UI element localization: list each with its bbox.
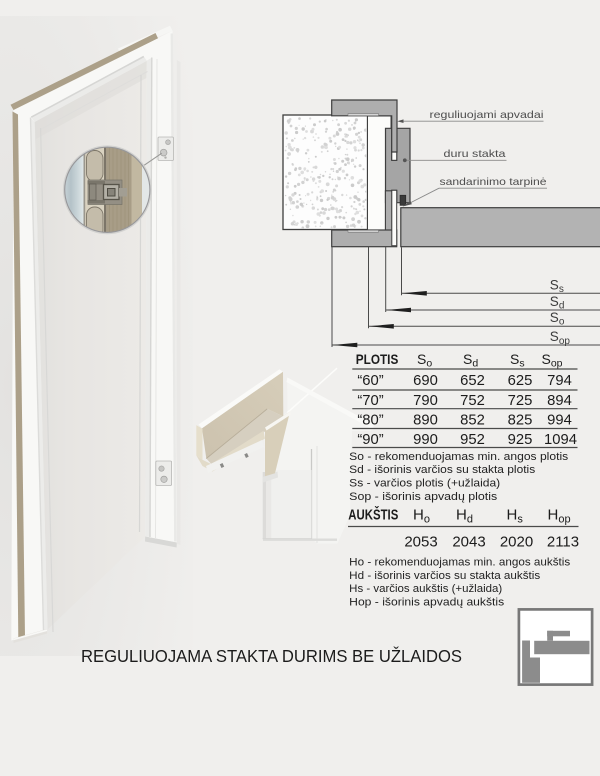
svg-text:“80”: “80” [357, 412, 383, 428]
svg-text:reguliuojami apvadai: reguliuojami apvadai [430, 109, 544, 121]
svg-text:Ho - rekomenduojamas min. ango: Ho - rekomenduojamas min. angos aukštis [349, 556, 570, 568]
svg-text:“70”: “70” [357, 393, 383, 409]
svg-text:“60”: “60” [357, 373, 383, 389]
svg-text:Sop - išorinis apvadų plotis: Sop - išorinis apvadų plotis [349, 491, 497, 503]
svg-text:REGULIUOJAMA STAKTA DURIMS BE: REGULIUOJAMA STAKTA DURIMS BE UŽLAIDOS [81, 646, 462, 666]
svg-text:Hd - išorinis varčios su stakt: Hd - išorinis varčios su stakta aukštis [349, 570, 540, 582]
svg-text:990: 990 [413, 432, 438, 448]
svg-text:duru stakta: duru stakta [444, 148, 506, 160]
svg-text:790: 790 [413, 393, 438, 409]
svg-text:825: 825 [508, 412, 533, 428]
svg-text:So - rekomenduojamas min. ango: So - rekomenduojamas min. angos plotis [349, 451, 568, 463]
svg-text:2043: 2043 [452, 534, 485, 551]
svg-text:Hs - varčios aukštis (+užlaida: Hs - varčios aukštis (+užlaida) [349, 583, 502, 595]
svg-text:Sd - išorinis varčios su stakt: Sd - išorinis varčios su stakta plotis [349, 464, 535, 476]
svg-text:AUKŠTIS: AUKŠTIS [348, 506, 398, 524]
svg-text:952: 952 [460, 432, 485, 448]
svg-text:890: 890 [413, 412, 438, 428]
svg-text:Hop - išorinis apvadų aukštis: Hop - išorinis apvadų aukštis [349, 597, 504, 609]
svg-text:752: 752 [460, 393, 485, 409]
svg-text:Ss - varčios plotis (+užlaida): Ss - varčios plotis (+užlaida) [349, 478, 500, 490]
svg-text:794: 794 [547, 373, 572, 389]
svg-text:PLOTIS: PLOTIS [356, 351, 399, 367]
svg-text:725: 725 [508, 393, 533, 409]
svg-text:994: 994 [547, 412, 572, 428]
svg-text:2020: 2020 [500, 534, 533, 551]
svg-text:sandarinimo tarpinė: sandarinimo tarpinė [440, 176, 547, 188]
svg-text:625: 625 [508, 373, 533, 389]
svg-text:894: 894 [547, 393, 572, 409]
svg-text:“90”: “90” [357, 432, 383, 448]
svg-text:925: 925 [508, 432, 533, 448]
svg-text:852: 852 [460, 412, 485, 428]
svg-text:652: 652 [460, 373, 485, 389]
svg-text:1094: 1094 [544, 432, 577, 448]
svg-text:2113: 2113 [547, 534, 579, 551]
svg-text:690: 690 [413, 373, 438, 389]
svg-text:2053: 2053 [404, 534, 437, 551]
